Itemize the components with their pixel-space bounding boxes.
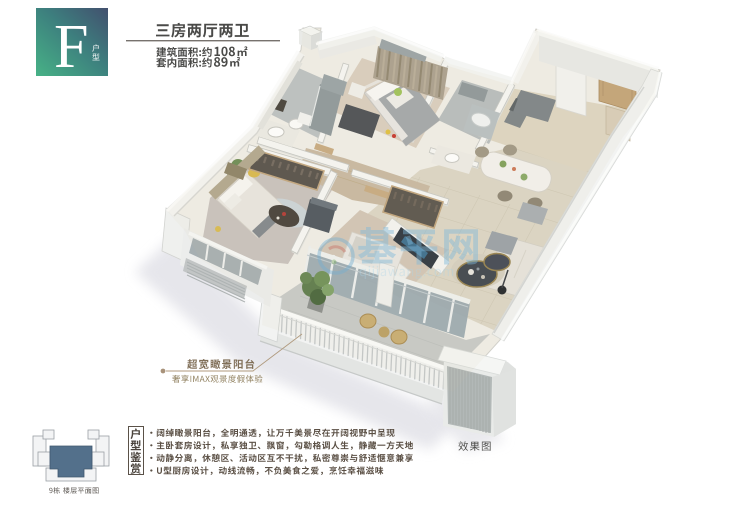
svg-text:F: F: [54, 13, 88, 81]
